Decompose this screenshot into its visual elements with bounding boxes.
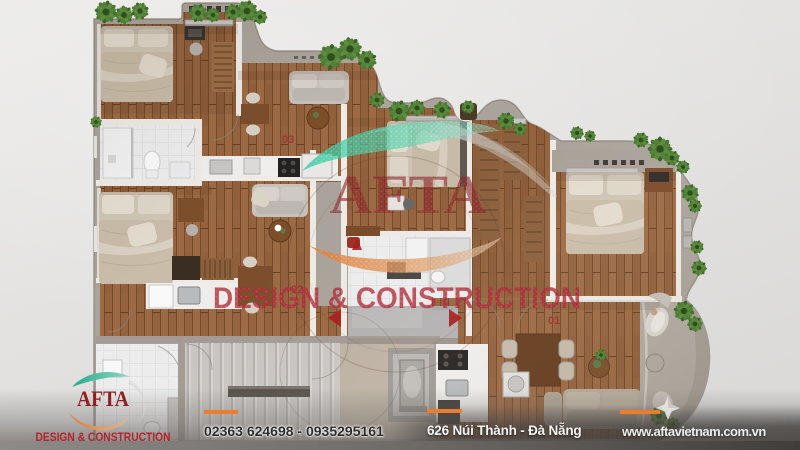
svg-text:DESIGN & CONSTRUCTION: DESIGN & CONSTRUCTION — [213, 282, 581, 315]
svg-text:AFTA: AFTA — [330, 164, 487, 225]
svg-text:03: 03 — [282, 134, 294, 146]
svg-text:DESIGN & CONSTRUCTION: DESIGN & CONSTRUCTION — [36, 432, 171, 444]
svg-text:AFTA: AFTA — [77, 386, 129, 411]
svg-text:01: 01 — [548, 315, 560, 327]
